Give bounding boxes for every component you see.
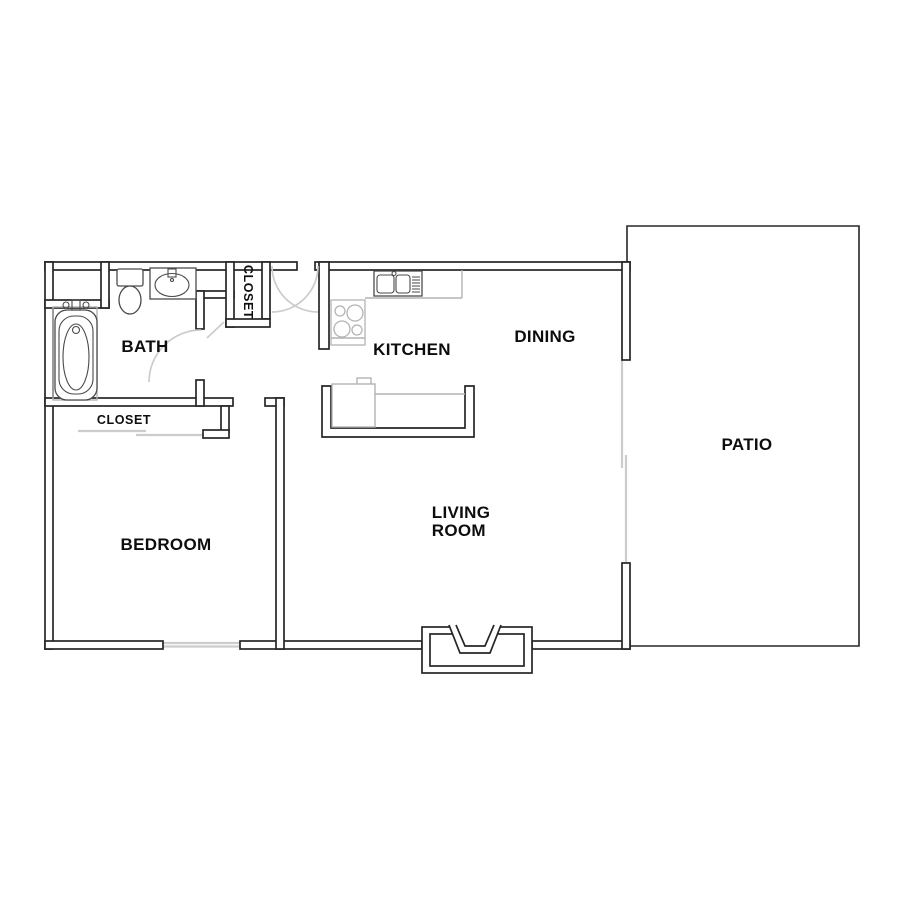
patio-label: PATIO — [722, 436, 773, 454]
vanity-sink-icon — [150, 268, 196, 299]
entry-alcove — [422, 625, 532, 673]
bedroom-closet-label: CLOSET — [97, 411, 151, 429]
window-bedroom — [163, 643, 240, 647]
floor-plan: BATH CLOSET KITCHEN DINING PATIO CLOSET … — [0, 0, 900, 900]
sliding-door-bedroom-closet — [78, 431, 203, 435]
closet-door-leaf — [207, 322, 224, 338]
kitchen-label: KITCHEN — [373, 341, 451, 359]
bathtub-icon — [53, 300, 97, 400]
breakfast-bar — [322, 378, 474, 437]
hall-closet-label: CLOSET — [239, 265, 257, 319]
double-sink-icon — [374, 271, 422, 296]
sliding-door-patio — [622, 360, 626, 565]
living-room-label: LIVING ROOM — [432, 504, 490, 540]
dining-label: DINING — [514, 328, 575, 346]
bar-counter — [332, 384, 375, 427]
bedroom-label: BEDROOM — [121, 536, 212, 554]
bath-label: BATH — [121, 338, 168, 356]
stove-icon — [331, 300, 365, 345]
toilet-icon — [117, 269, 143, 314]
